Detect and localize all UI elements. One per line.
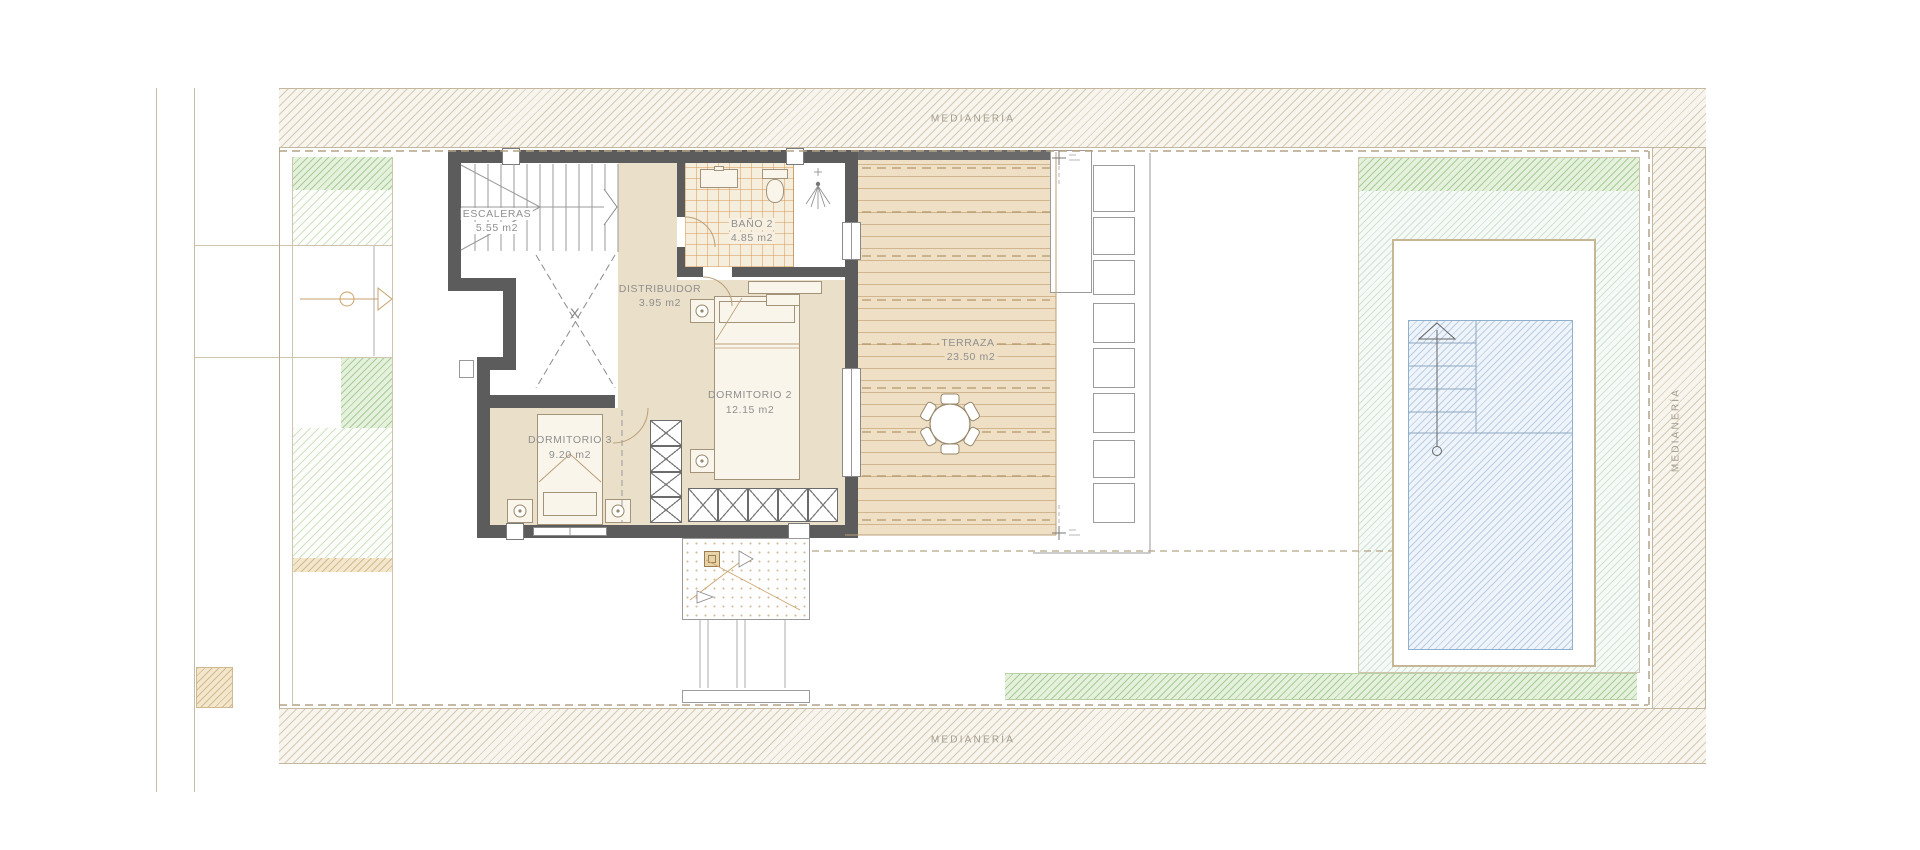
room-area-distribuidor: 3.95 m2	[639, 297, 681, 309]
pergola-panel-6	[1093, 393, 1135, 433]
toilet-tank	[762, 169, 788, 179]
wall-post-n	[786, 148, 804, 165]
room-label-dormitorio2: DORMITORIO 2	[708, 389, 792, 401]
dorm3-nightstand-2	[605, 499, 631, 523]
porch-light-box-inner	[708, 555, 716, 563]
bath-window	[842, 222, 861, 260]
bath-vanity	[700, 169, 738, 188]
dorm2-nightstand-1	[690, 299, 715, 323]
room-area-bano2: 4.85 m2	[729, 232, 775, 244]
pergola-top-beam	[858, 150, 1052, 160]
street-line-outer	[156, 88, 157, 792]
room-label-bano2: BAÑO 2	[729, 218, 775, 230]
room-area-escaleras: 5.55 m2	[474, 222, 520, 234]
garden-hedge-top	[293, 157, 392, 190]
pergola-panel-8	[1093, 483, 1135, 523]
wall-post-sw	[506, 523, 524, 540]
driveway-apron-top-line	[194, 245, 292, 246]
dorm2-wardrobe	[688, 488, 838, 522]
entry-porch	[682, 538, 810, 620]
party-wall-label-top: MEDIANERÍA	[931, 114, 1015, 125]
garden-lawn-bottom	[293, 428, 392, 558]
wall-bath-west-a	[677, 163, 685, 217]
dorm2-desk	[748, 281, 822, 294]
room-area-terraza: 23.50 m2	[945, 351, 998, 363]
driveway-apron-bottom-line	[194, 357, 292, 358]
floor-plan-canvas: MEDIANERÍA MEDIANERÍA MEDIANERÍA ESCALER…	[0, 0, 1920, 850]
party-wall-label-right: MEDIANERÍA	[1671, 388, 1682, 472]
room-area-dormitorio3: 9.20 m2	[549, 449, 591, 461]
shower-tray	[793, 163, 845, 267]
garden-hedge-mid	[341, 358, 392, 428]
driveway	[293, 245, 392, 358]
wall-east	[845, 150, 858, 538]
garden-path-strip	[293, 558, 392, 572]
room-area-dormitorio2: 12.15 m2	[726, 404, 775, 416]
dorm2-chair	[766, 294, 800, 306]
wall-west-lower	[477, 357, 490, 538]
pergola-panel-7	[1093, 440, 1135, 478]
porch-gravel	[683, 539, 809, 619]
pergola-panel-1	[1093, 165, 1135, 212]
dorm3-nightstand-1	[507, 499, 533, 523]
room-label-dormitorio3: DORMITORIO 3	[528, 434, 612, 446]
dorm2-nightstand-2	[690, 449, 715, 473]
pergola-panel-large	[1050, 150, 1092, 293]
kerb-block	[196, 667, 233, 708]
pergola-panel-5	[1093, 348, 1135, 388]
rear-hedge-strip	[1005, 673, 1637, 700]
dorm3-window	[533, 527, 607, 536]
dorm2-slider-window	[842, 368, 861, 477]
pool-garden-hedge	[1359, 158, 1639, 191]
wall-dorm3-north	[477, 395, 615, 408]
hall-closet	[650, 420, 682, 523]
room-label-distribuidor: DISTRIBUIDOR	[619, 283, 701, 295]
street-line-inner	[194, 88, 195, 792]
bath-faucet	[714, 166, 724, 171]
pergola-panel-3	[1093, 260, 1135, 295]
left-garden-strip	[292, 157, 393, 704]
party-wall-label-bottom: MEDIANERÍA	[931, 735, 1015, 746]
pool-water	[1408, 320, 1573, 650]
room-label-escaleras: ESCALERAS	[461, 208, 533, 220]
dorm3-pillow	[543, 492, 597, 516]
room-label-terraza: TERRAZA	[939, 337, 996, 349]
dorm2-bed	[714, 296, 800, 480]
porch-platform	[682, 690, 810, 703]
wall-post-nw	[502, 148, 520, 165]
stair-void-marker: X	[570, 306, 581, 323]
wall-west-upper	[448, 150, 461, 291]
garden-lawn-top	[293, 190, 392, 245]
wall-bath-south-b	[732, 267, 845, 277]
toilet-bowl	[766, 179, 784, 203]
wall-bath-south-a	[677, 267, 703, 277]
pergola-panel-2	[1093, 217, 1135, 255]
pergola-panel-4	[1093, 303, 1135, 343]
plot-left-boundary	[279, 88, 280, 764]
ac-unit	[459, 360, 474, 378]
